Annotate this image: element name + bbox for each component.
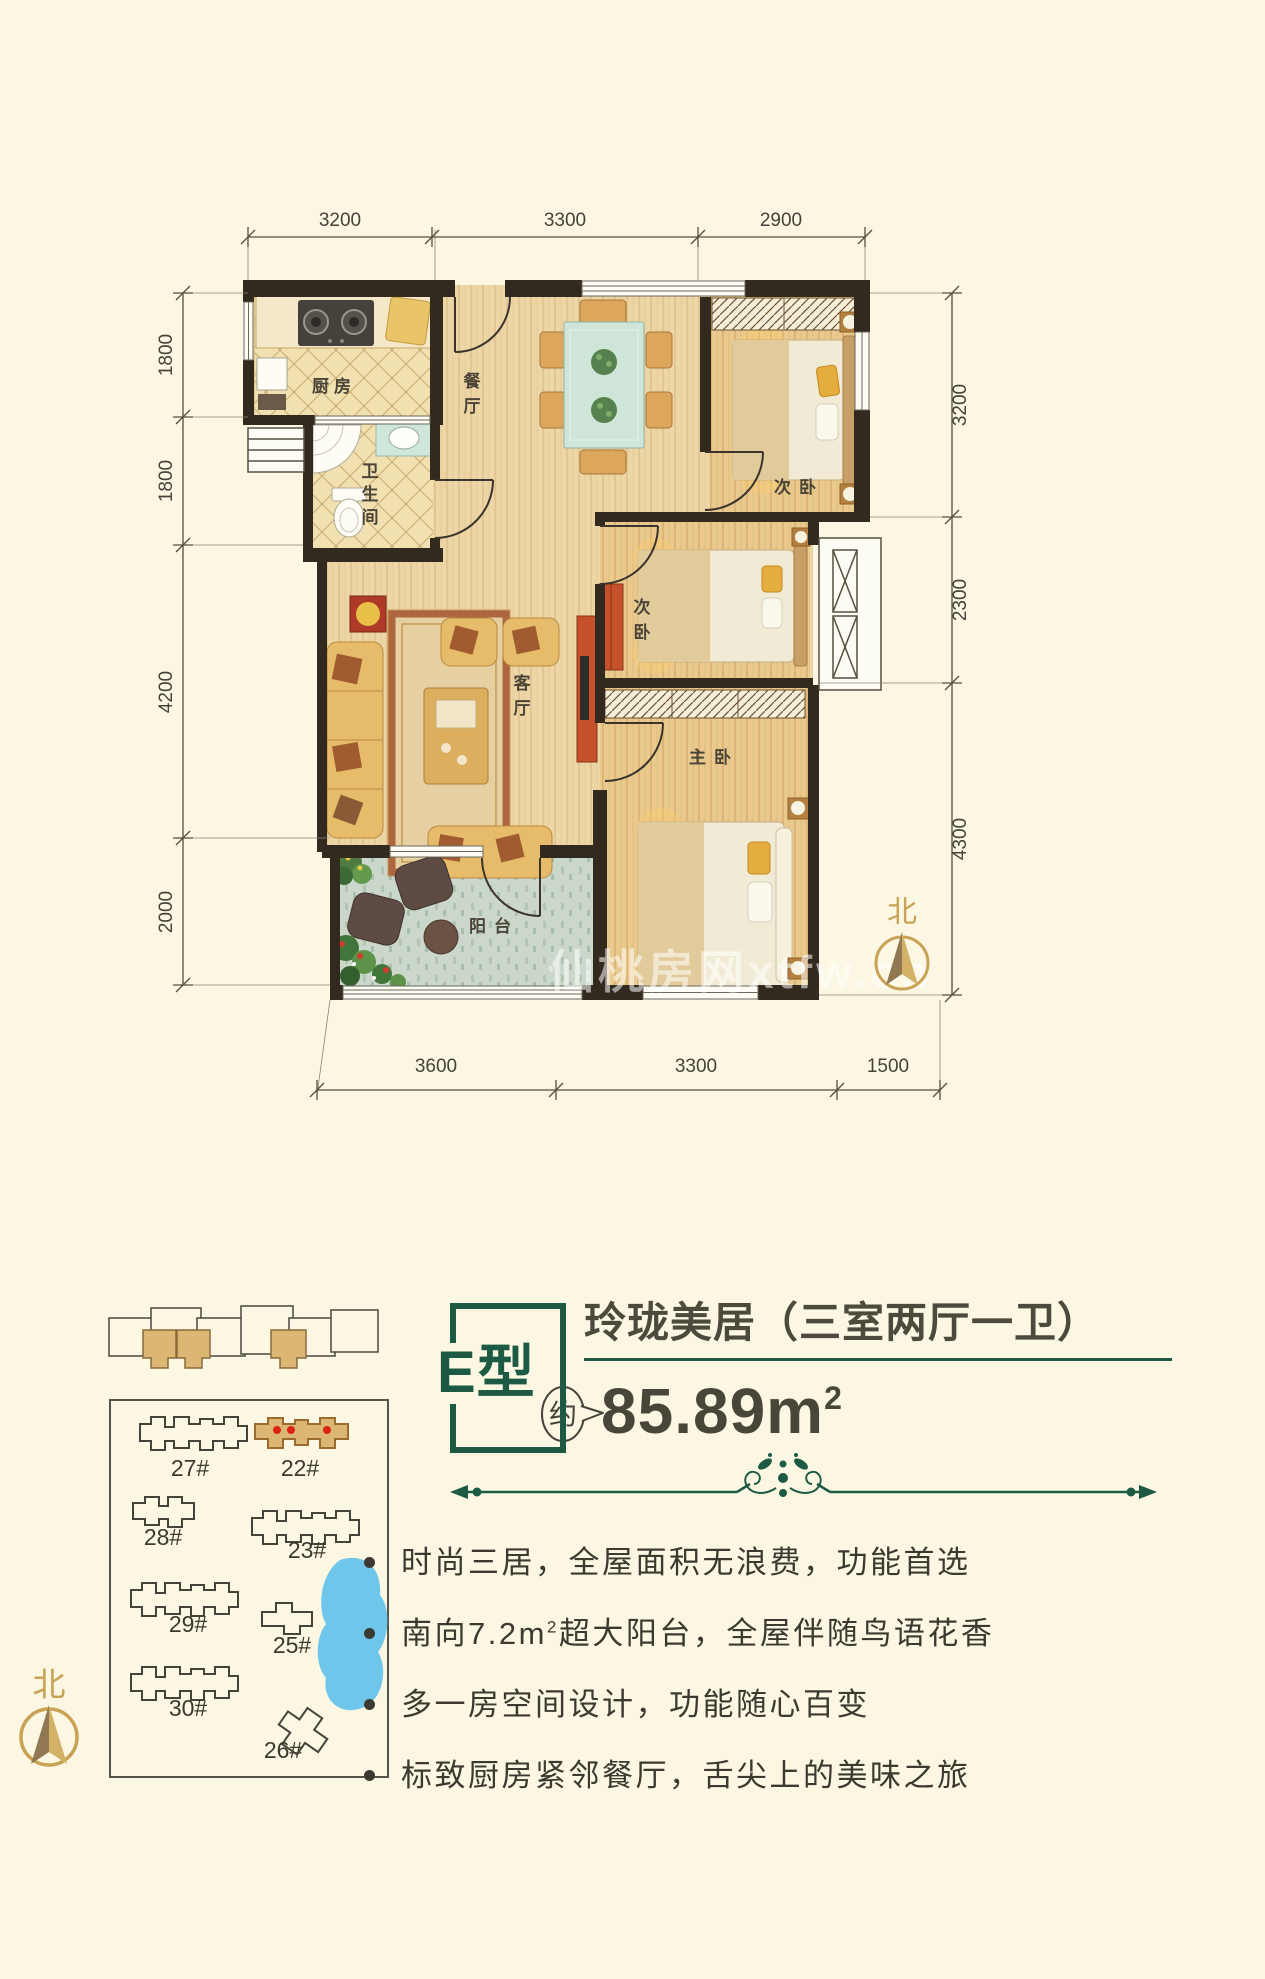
dim-left-2: 1800 <box>156 460 177 502</box>
type-badge: E型 <box>450 1303 566 1453</box>
feature-text: 南向7.2m2超大阳台，全屋伴随鸟语花香 <box>401 1613 994 1655</box>
site-plan: 27# 22# 28# 23# 29# 25# 30# 26# 北 <box>21 1306 388 1777</box>
bullet-dot <box>364 1770 375 1781</box>
feature-text: 时尚三居，全屋面积无浪费，功能首选 <box>401 1542 971 1584</box>
feature-item: 标致厨房紧邻餐厅，舌尖上的美味之旅 <box>364 1755 1184 1797</box>
feature-item: 南向7.2m2超大阳台，全屋伴随鸟语花香 <box>364 1613 1184 1655</box>
area-superscript: 2 <box>824 1380 842 1416</box>
bedroom-top-furniture <box>712 298 860 504</box>
key-plan <box>109 1306 378 1368</box>
room-label-kitchen: 厨房 <box>312 376 356 396</box>
bullet-dot <box>364 1628 375 1639</box>
room-label-bedroom-top: 次卧 <box>774 477 824 497</box>
feature-list: 时尚三居，全屋面积无浪费，功能首选 南向7.2m2超大阳台，全屋伴随鸟语花香 多… <box>364 1542 1184 1825</box>
watermark: 仙桃房网xtfw.cn <box>548 946 933 998</box>
feature-text: 标致厨房紧邻餐厅，舌尖上的美味之旅 <box>401 1755 971 1797</box>
title-underline <box>584 1358 1172 1361</box>
dim-left-1: 1800 <box>156 334 177 376</box>
room-label-bath: 卫生间 <box>359 462 379 531</box>
feature-item: 多一房空间设计，功能随心百变 <box>364 1684 1184 1726</box>
room-label-bedroom-mid: 次卧 <box>631 597 651 648</box>
label-27: 27# <box>171 1455 210 1481</box>
site-north-label: 北 <box>33 1666 66 1703</box>
flyer-page: 3200 3300 2900 1800 1800 4200 2000 3200 … <box>0 0 1265 1979</box>
feature-item: 时尚三居，全屋面积无浪费，功能首选 <box>364 1542 1184 1584</box>
label-22: 22# <box>281 1455 320 1481</box>
label-23: 23# <box>288 1537 327 1563</box>
floor-plan: 3200 3300 2900 1800 1800 4200 2000 3200 … <box>156 210 971 1100</box>
ornament-divider <box>450 1453 1157 1499</box>
area-row: 85.89m2 <box>601 1374 842 1448</box>
bullet-dot <box>364 1699 375 1710</box>
room-label-living: 客厅 <box>511 673 532 724</box>
dim-left-4: 2000 <box>156 891 177 933</box>
room-label-master: 主卧 <box>689 747 739 767</box>
type-badge-label: E型 <box>434 1343 539 1404</box>
dim-bottom-1: 3600 <box>415 1056 457 1077</box>
plan-north-label: 北 <box>887 896 917 929</box>
site-north-arrow-icon: 北 <box>21 1666 77 1765</box>
room-label-dining: 餐厅 <box>461 371 481 422</box>
feature-text: 多一房空间设计，功能随心百变 <box>401 1684 870 1726</box>
dim-top-2: 3300 <box>544 210 586 231</box>
dim-bottom-3: 1500 <box>867 1056 909 1077</box>
label-26: 26# <box>264 1737 303 1763</box>
label-30: 30# <box>169 1695 208 1721</box>
label-25: 25# <box>273 1632 312 1658</box>
dim-top-1: 3200 <box>319 210 361 231</box>
area-value: 85.89m <box>601 1375 824 1447</box>
building-25 <box>262 1603 312 1634</box>
building-22 <box>255 1418 348 1448</box>
label-28: 28# <box>144 1524 183 1550</box>
dim-top-3: 2900 <box>760 210 802 231</box>
dim-right-2: 2300 <box>950 579 971 621</box>
label-29: 29# <box>169 1611 208 1637</box>
bullet-dot <box>364 1557 375 1568</box>
dim-bottom-2: 3300 <box>675 1056 717 1077</box>
building-27 <box>140 1417 247 1450</box>
dim-right-3: 4300 <box>950 818 971 860</box>
dim-right-1: 3200 <box>950 384 971 426</box>
room-label-balcony: 阳台 <box>469 916 519 936</box>
dim-left-3: 4200 <box>156 671 177 713</box>
building-28 <box>133 1497 194 1527</box>
page-title: 玲珑美居（三室两厅一卫） <box>584 1289 1184 1350</box>
